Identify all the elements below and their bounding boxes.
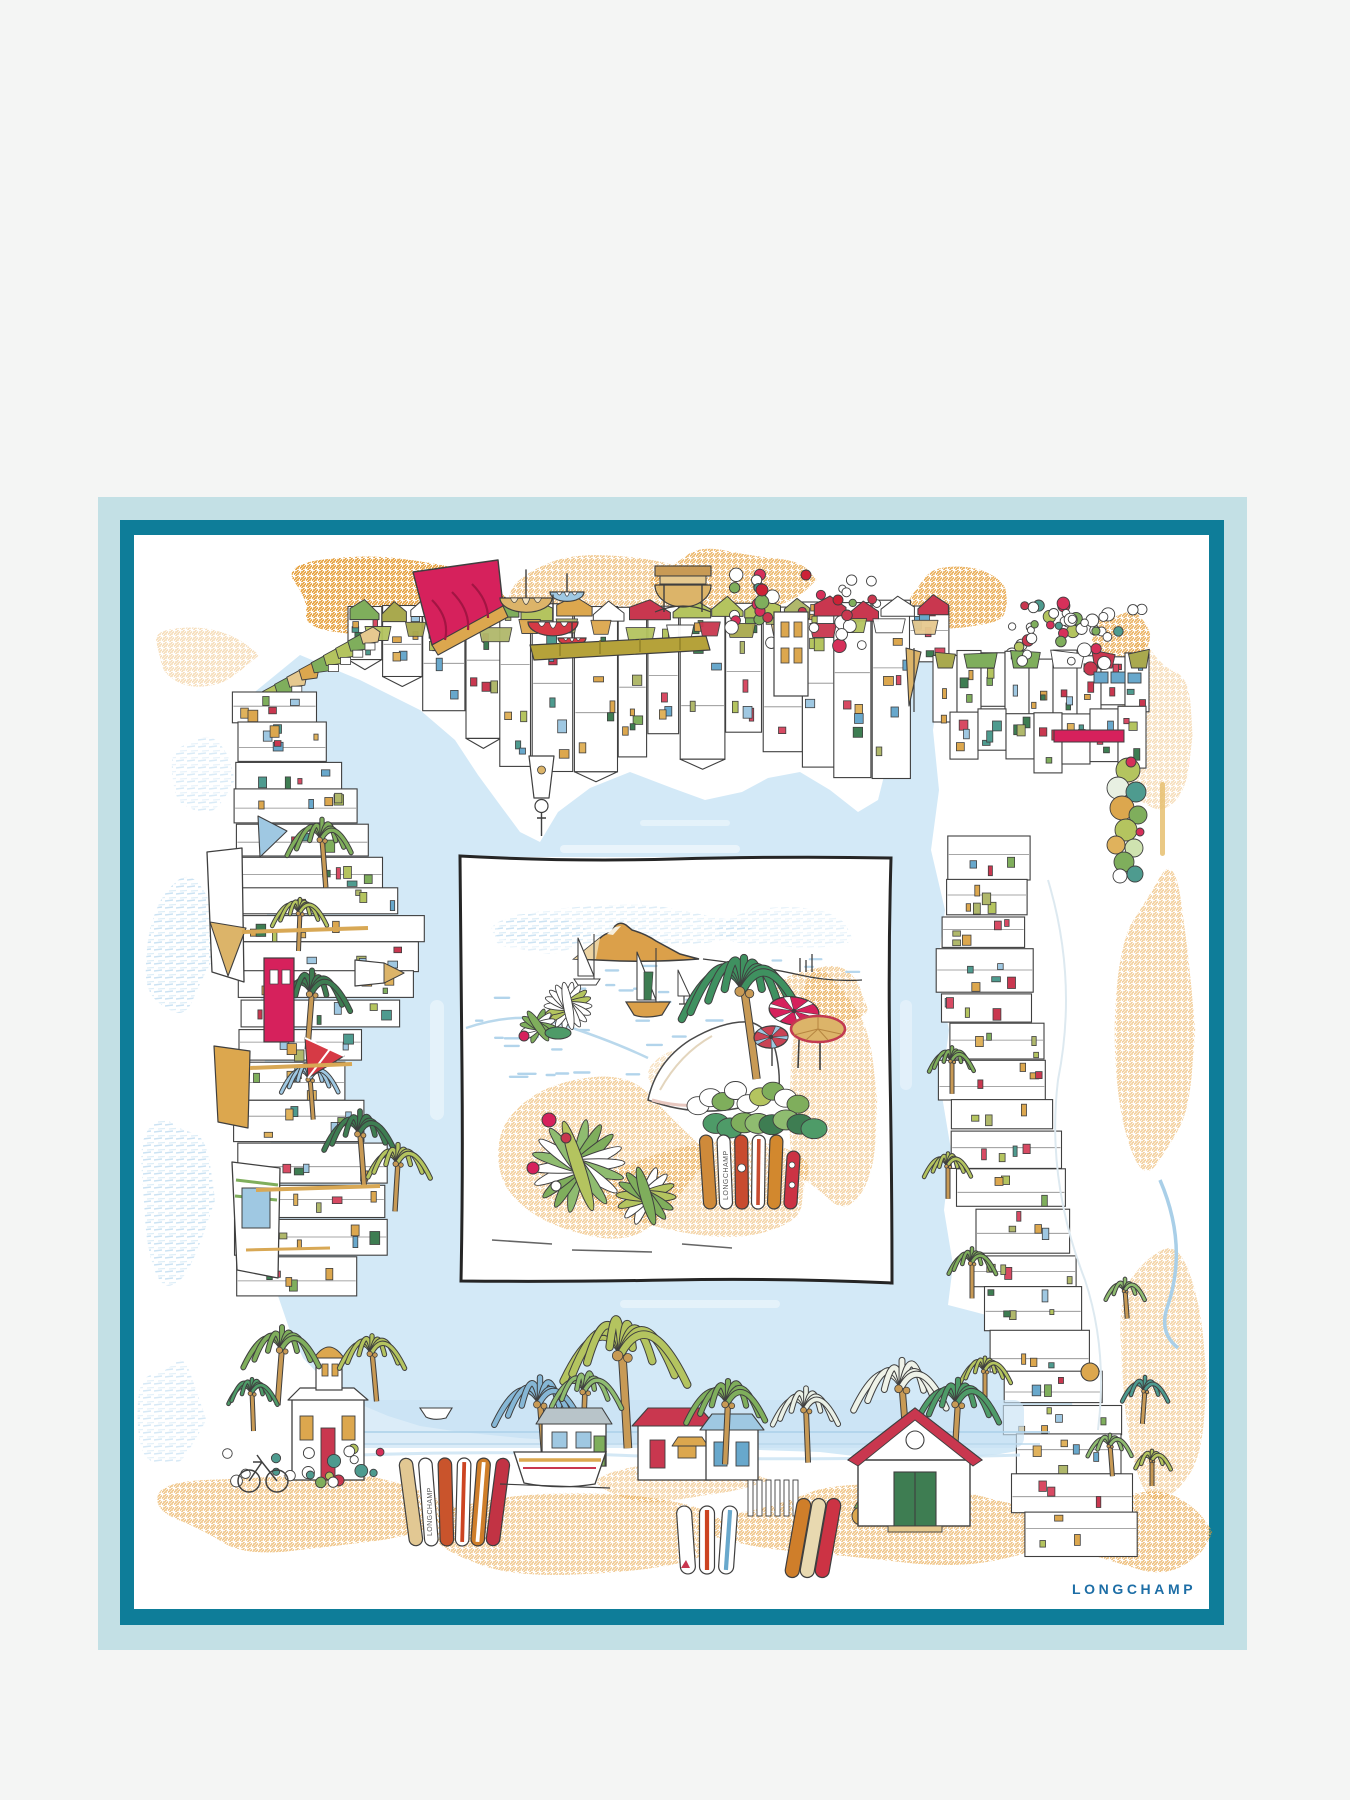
svg-text:LONGCHAMP: LONGCHAMP	[427, 1487, 434, 1536]
svg-text:LONGCHAMP: LONGCHAMP	[1072, 1581, 1196, 1597]
svg-text:LONGCHAMP: LONGCHAMP	[723, 1150, 730, 1200]
